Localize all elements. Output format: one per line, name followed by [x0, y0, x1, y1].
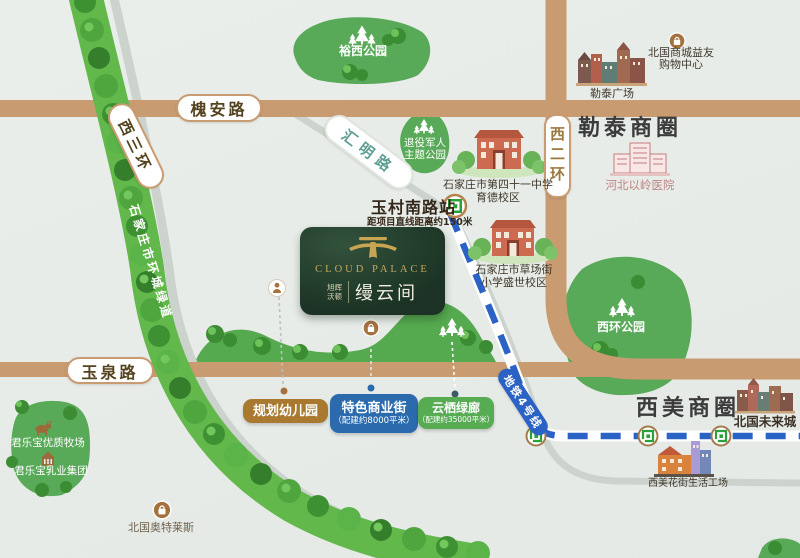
caochang-school-label-2: 小学盛世校区	[481, 276, 547, 289]
project-logo-row: 旭辉 沃顿 缦云间	[327, 279, 418, 305]
school41-label-1: 石家庄市第四十一中学	[443, 178, 553, 191]
caochang-school-building	[468, 220, 558, 264]
road-label-xierhuan-text: 西二环	[547, 126, 568, 186]
shopping-bag-icon	[153, 501, 171, 519]
ximei-flower-building	[654, 441, 714, 477]
person-icon	[269, 280, 286, 297]
school41-label-2: 育德校区	[476, 191, 520, 204]
brand-name: 旭辉 沃顿	[327, 283, 342, 301]
ximei-flower-label: 西美花街生活工场	[648, 477, 728, 490]
letai-plaza-label: 勒泰广场	[590, 87, 634, 100]
beiguo-outlets-label: 北国奥特莱斯	[128, 521, 194, 534]
district-letai: 勒泰商圈	[578, 110, 682, 142]
veterans-park-label-2: 主题公园	[404, 149, 446, 161]
commercial-street-note: （配建约8000平米）	[333, 416, 414, 426]
beiguo-future-label: 北国未来城	[734, 415, 797, 428]
shopping-bag-icon	[363, 320, 379, 336]
beiguo-future-building	[735, 378, 795, 414]
yuxi-park-label: 裕西公园	[339, 45, 387, 58]
brand-divider	[348, 281, 349, 303]
junlebao-group-label: 君乐宝乳业集团	[14, 465, 88, 478]
road-label-yuquan: 玉泉路	[66, 357, 154, 384]
commercial-street-label: 特色商业街	[341, 401, 406, 416]
kindergarten-dot	[281, 388, 288, 395]
commercial-dot	[368, 385, 375, 392]
green-corridor-note: （配建约35000平米）	[418, 415, 494, 424]
beiguo-mall-label-2: 购物中心	[659, 58, 703, 71]
kindergarten-pill: 规划幼儿园	[243, 399, 328, 423]
project-logo-en: CLOUD PALACE	[315, 264, 430, 275]
road-label-huaian-text: 槐安路	[190, 96, 247, 120]
road-label-huaian: 槐安路	[176, 94, 262, 122]
caochang-school-label-1: 石家庄市草场街	[476, 263, 553, 276]
junlebao-ranch-label: 君乐宝优质牧场	[11, 437, 85, 450]
station-distance: 距项目直线距离约150米	[367, 214, 472, 228]
yiling-hospital-building	[610, 143, 670, 176]
project-name-cn: 缦云间	[355, 279, 418, 305]
yiling-hospital-label: 河北以岭医院	[606, 179, 675, 192]
brand-line2: 沃顿	[327, 292, 342, 301]
project-logo-card: CLOUD PALACE 旭辉 沃顿 缦云间	[300, 227, 445, 315]
brand-line1: 旭辉	[327, 283, 342, 292]
veterans-park-label-1: 退役军人	[404, 137, 446, 149]
kindergarten-label: 规划幼儿园	[253, 404, 318, 419]
xihuan-park-label: 西环公园	[597, 321, 645, 334]
location-map: 槐安路 玉泉路 西三环 汇明路 西二环 石家庄市环城绿道 地铁4号线 玉村南路站…	[0, 0, 800, 558]
district-ximei: 西美商圈	[636, 390, 740, 422]
pavilion-emblem-icon	[341, 236, 405, 262]
metro-station-icon	[712, 427, 731, 446]
school41-building	[452, 130, 546, 178]
metro-station-icon	[639, 427, 658, 446]
green-corridor-pill: 云栖绿廊 （配建约35000平米）	[418, 397, 494, 429]
commercial-street-pill: 特色商业街 （配建约8000平米）	[330, 394, 418, 433]
letai-plaza-building	[576, 42, 647, 86]
green-corridor-label: 云栖绿廊	[432, 402, 480, 415]
road-label-yuquan-text: 玉泉路	[81, 359, 138, 383]
